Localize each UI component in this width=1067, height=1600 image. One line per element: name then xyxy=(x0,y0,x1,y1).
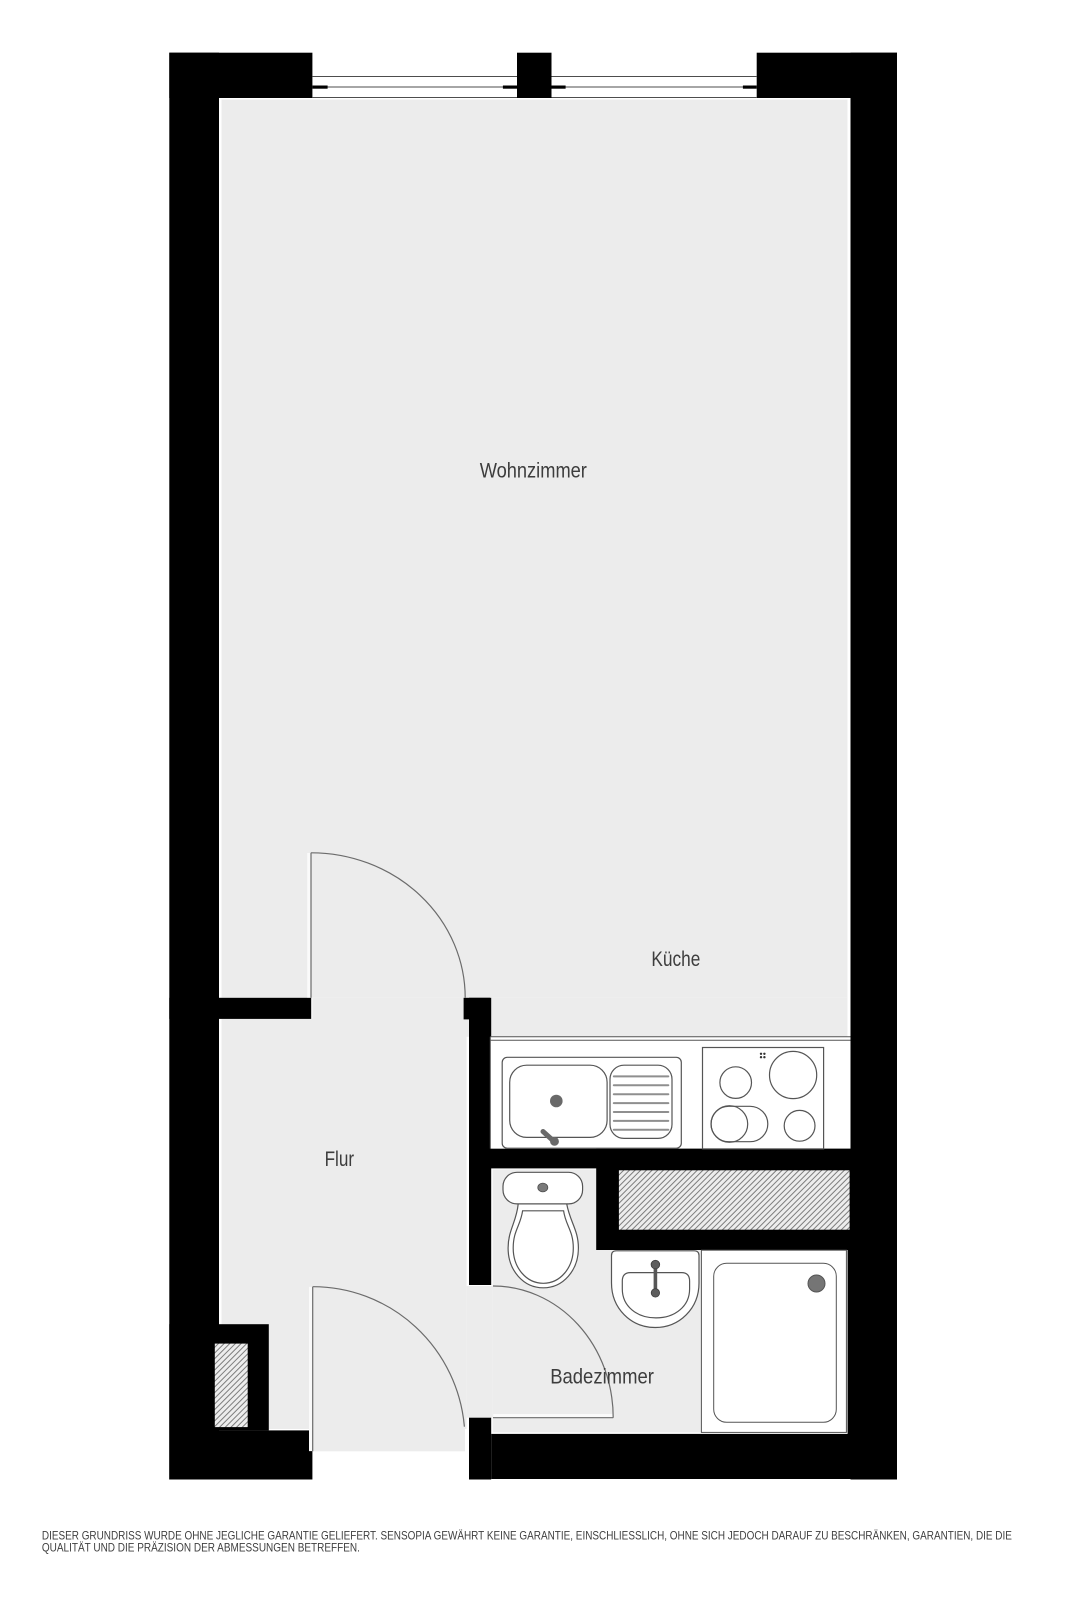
svg-text:Küche: Küche xyxy=(651,948,700,971)
svg-text:Flur: Flur xyxy=(325,1148,355,1171)
svg-text:QUALITÄT UND DIE PRÄZISION DER: QUALITÄT UND DIE PRÄZISION DER ABMESSUNG… xyxy=(42,1540,360,1554)
svg-text:Wohnzimmer: Wohnzimmer xyxy=(480,460,587,483)
svg-text:Badezimmer: Badezimmer xyxy=(550,1366,654,1389)
